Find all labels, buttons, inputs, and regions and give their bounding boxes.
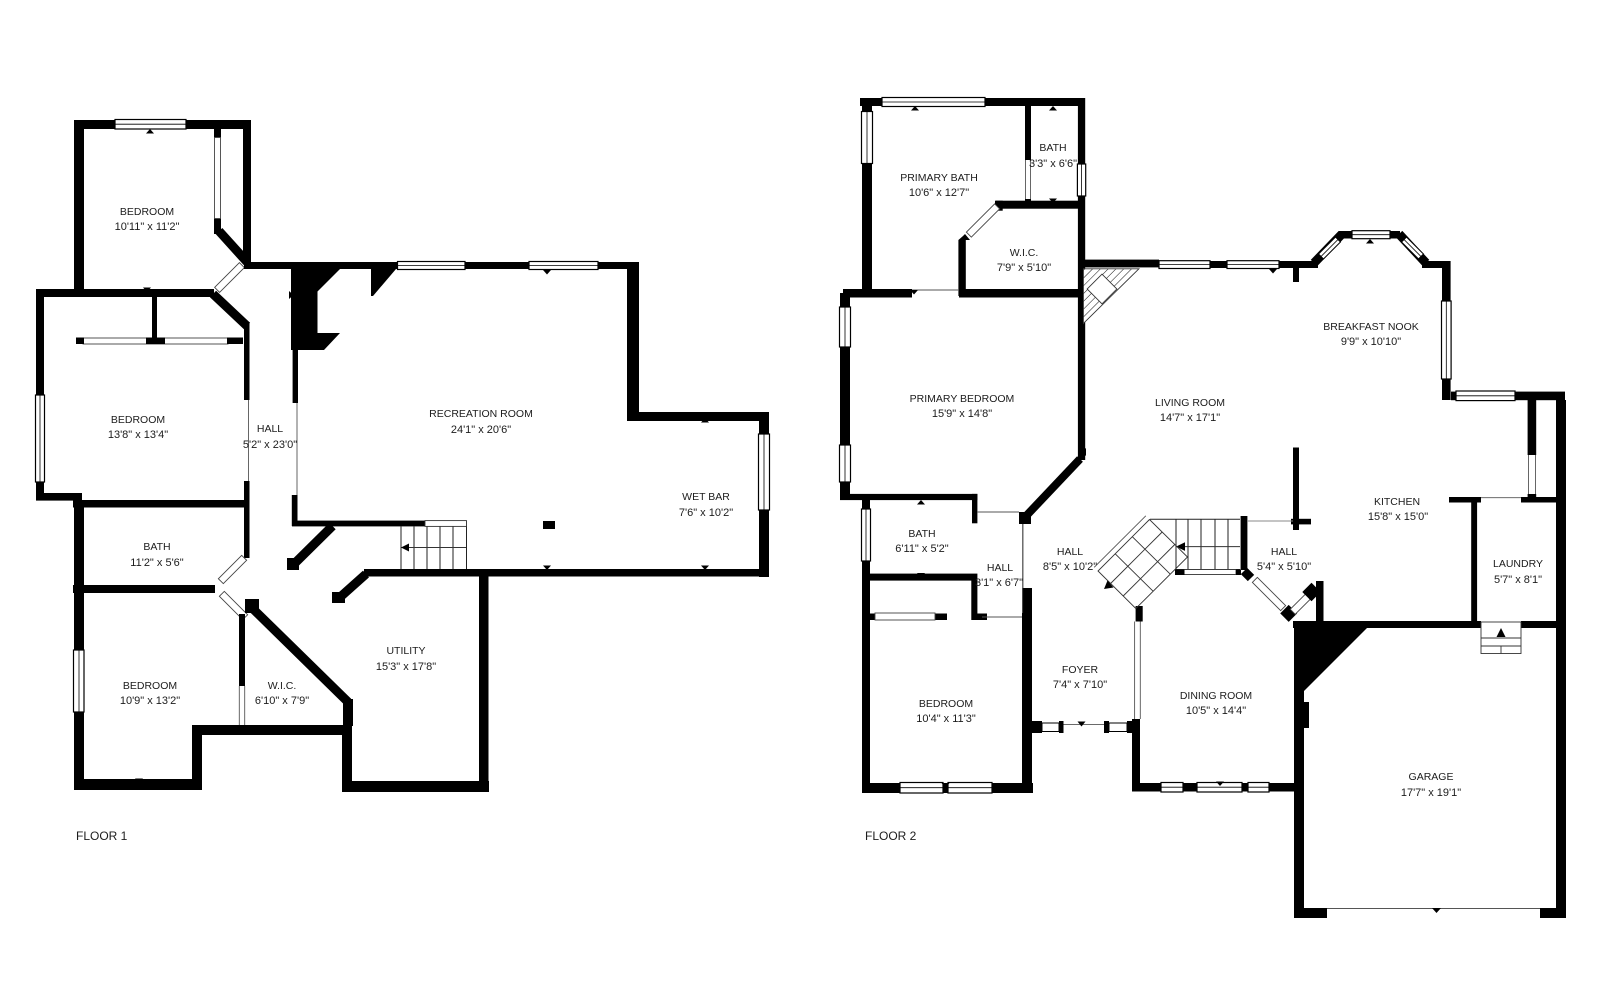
svg-text:7'4" x 7'10": 7'4" x 7'10"	[1053, 679, 1107, 691]
svg-text:BATH: BATH	[908, 528, 935, 540]
svg-text:10'5" x 14'4": 10'5" x 14'4"	[1186, 705, 1246, 717]
svg-text:3'1" x 6'7": 3'1" x 6'7"	[975, 577, 1023, 589]
svg-text:5'4" x 5'10": 5'4" x 5'10"	[1257, 561, 1311, 573]
svg-text:BATH: BATH	[1039, 142, 1066, 154]
svg-text:HALL: HALL	[1057, 546, 1083, 558]
svg-text:BEDROOM: BEDROOM	[123, 680, 177, 692]
svg-text:7'6" x 10'2": 7'6" x 10'2"	[679, 507, 733, 519]
svg-text:HALL: HALL	[257, 423, 283, 435]
svg-text:10'4" x 11'3": 10'4" x 11'3"	[916, 713, 976, 725]
svg-text:BEDROOM: BEDROOM	[120, 206, 174, 218]
svg-text:FLOOR 1: FLOOR 1	[76, 829, 128, 843]
svg-text:RECREATION ROOM: RECREATION ROOM	[429, 408, 533, 420]
svg-text:FOYER: FOYER	[1062, 664, 1099, 676]
svg-text:13'8" x 13'4": 13'8" x 13'4"	[108, 429, 168, 441]
svg-text:6'10" x 7'9": 6'10" x 7'9"	[255, 695, 309, 707]
svg-text:KITCHEN: KITCHEN	[1374, 496, 1420, 508]
svg-text:5'7" x 8'1": 5'7" x 8'1"	[1494, 574, 1542, 586]
svg-text:W.I.C.: W.I.C.	[268, 680, 297, 692]
svg-text:PRIMARY BEDROOM: PRIMARY BEDROOM	[910, 393, 1015, 405]
svg-text:HALL: HALL	[987, 562, 1013, 574]
svg-text:DINING ROOM: DINING ROOM	[1180, 690, 1252, 702]
svg-text:15'8" x 15'0": 15'8" x 15'0"	[1368, 511, 1428, 523]
svg-text:10'9" x 13'2": 10'9" x 13'2"	[120, 695, 180, 707]
svg-text:14'7" x 17'1": 14'7" x 17'1"	[1160, 412, 1220, 424]
svg-text:17'7" x 19'1": 17'7" x 19'1"	[1401, 787, 1461, 799]
svg-text:3'3" x 6'6": 3'3" x 6'6"	[1029, 158, 1077, 170]
svg-text:BEDROOM: BEDROOM	[111, 414, 165, 426]
svg-text:FLOOR 2: FLOOR 2	[865, 829, 917, 843]
svg-text:W.I.C.: W.I.C.	[1010, 247, 1039, 259]
svg-text:WET BAR: WET BAR	[682, 491, 730, 503]
svg-text:6'11" x 5'2": 6'11" x 5'2"	[895, 543, 948, 555]
svg-text:5'2" x 23'0": 5'2" x 23'0"	[243, 439, 297, 451]
svg-text:8'5" x 10'2": 8'5" x 10'2"	[1043, 561, 1097, 573]
svg-text:HALL: HALL	[1271, 546, 1297, 558]
svg-text:BATH: BATH	[143, 541, 170, 553]
svg-text:9'9" x 10'10": 9'9" x 10'10"	[1341, 336, 1401, 348]
svg-text:PRIMARY BATH: PRIMARY BATH	[900, 172, 978, 184]
svg-text:BEDROOM: BEDROOM	[919, 698, 973, 710]
svg-text:LAUNDRY: LAUNDRY	[1493, 558, 1543, 570]
svg-text:GARAGE: GARAGE	[1409, 771, 1454, 783]
svg-text:BREAKFAST NOOK: BREAKFAST NOOK	[1323, 321, 1419, 333]
svg-text:LIVING ROOM: LIVING ROOM	[1155, 397, 1225, 409]
svg-text:10'6" x 12'7": 10'6" x 12'7"	[909, 187, 969, 199]
svg-text:15'3" x 17'8": 15'3" x 17'8"	[376, 661, 436, 673]
svg-text:15'9" x 14'8": 15'9" x 14'8"	[932, 408, 992, 420]
svg-text:24'1" x 20'6": 24'1" x 20'6"	[451, 424, 511, 436]
svg-text:11'2" x 5'6": 11'2" x 5'6"	[130, 557, 183, 569]
svg-text:UTILITY: UTILITY	[386, 645, 425, 657]
svg-text:10'11" x 11'2": 10'11" x 11'2"	[115, 221, 180, 233]
svg-text:7'9" x 5'10": 7'9" x 5'10"	[997, 262, 1051, 274]
